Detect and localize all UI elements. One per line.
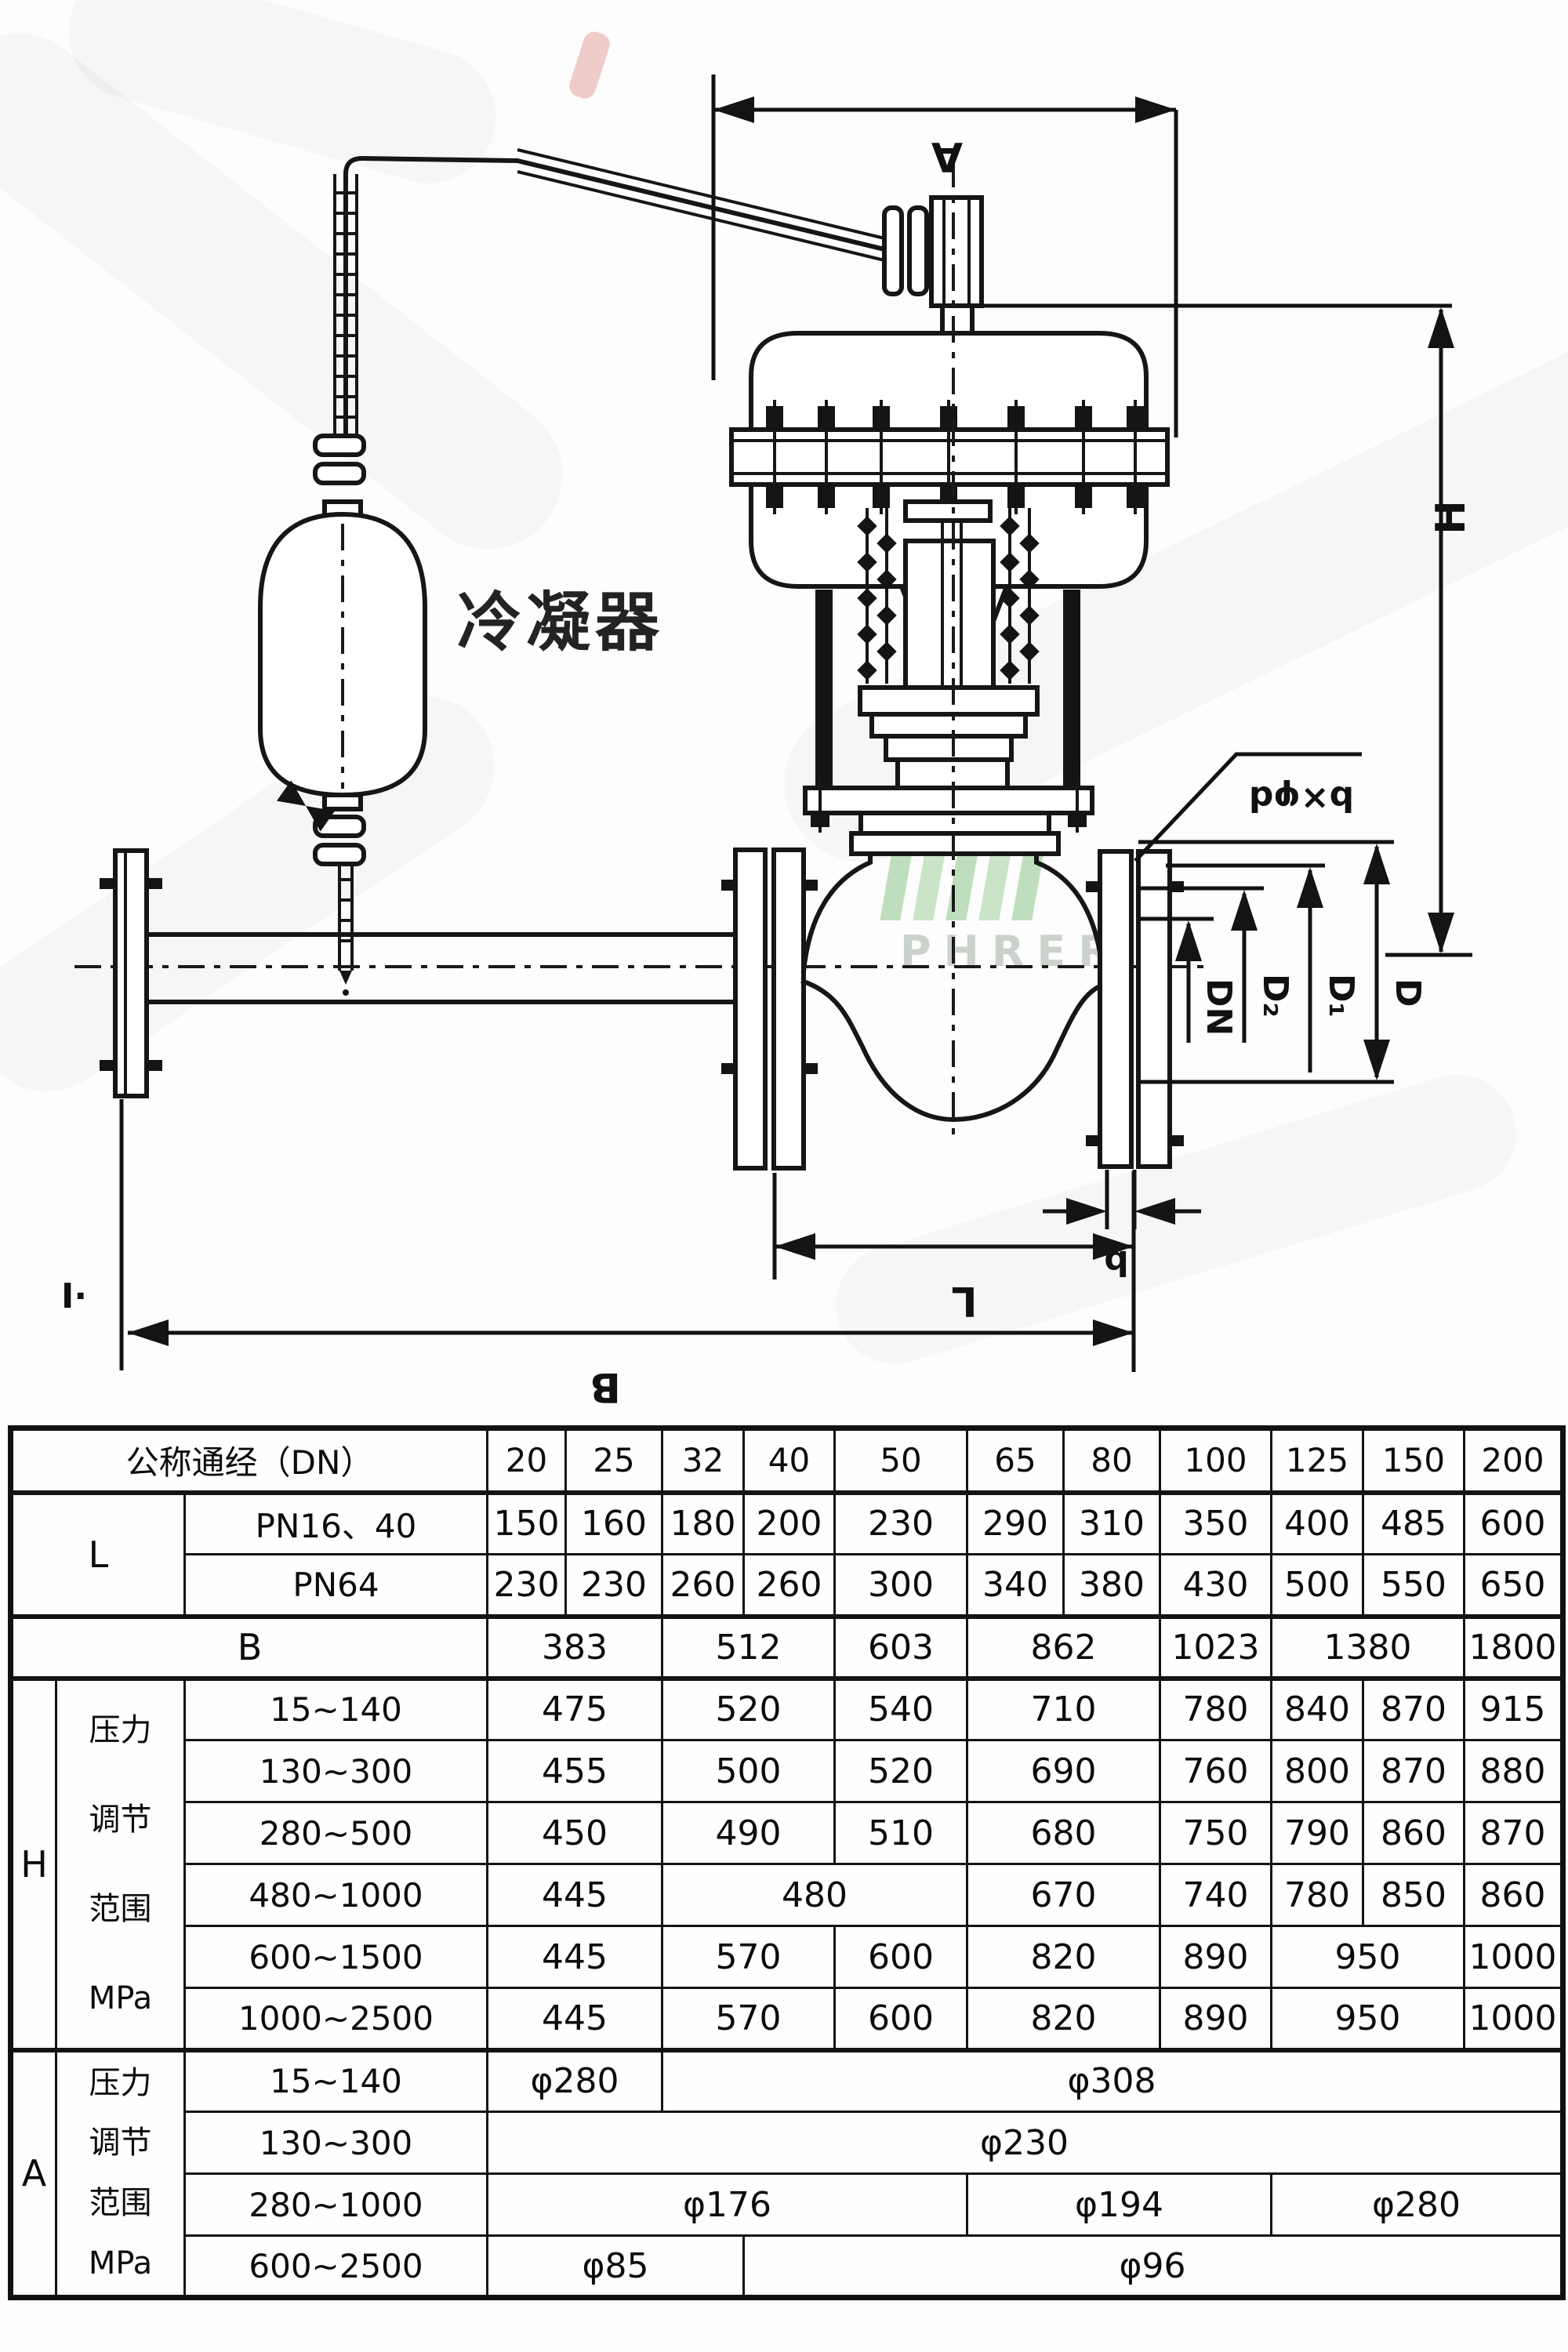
table-cell: 780 <box>1272 1864 1363 1926</box>
table-cell: 890 <box>1160 1926 1272 1988</box>
table-row-H-1000-2500: 1000~25004455706008208909501000 <box>11 1988 1563 2050</box>
table-cell: φ280 <box>488 2050 662 2112</box>
table-cell: 890 <box>1160 1988 1272 2050</box>
section-mark: I· <box>61 1276 87 1316</box>
table-cell: 860 <box>1363 1802 1465 1864</box>
page: PHRER 冷凝器 <box>0 0 1568 2352</box>
table-cell: 950 <box>1272 1926 1465 1988</box>
table-cell: 压力调节范围MPa <box>56 1679 185 2050</box>
table-cell: 570 <box>662 1988 835 2050</box>
table-cell: 475 <box>488 1679 662 1740</box>
dn-column-header: 20 <box>488 1428 566 1493</box>
table-cell: 15~140 <box>185 2050 488 2112</box>
table-cell: 603 <box>835 1617 967 1679</box>
table-cell: 1000 <box>1465 1926 1563 1988</box>
table-cell: 445 <box>488 1864 662 1926</box>
dim-label-D1: D₁ <box>1321 974 1361 1018</box>
left-pipe-flange <box>115 851 147 1096</box>
table-cell: 490 <box>662 1802 835 1864</box>
table-cell: 480~1000 <box>185 1864 488 1926</box>
table-cell: 820 <box>967 1926 1160 1988</box>
table-cell: 130~300 <box>185 1740 488 1802</box>
table-cell: 915 <box>1465 1679 1563 1740</box>
table-cell: 380 <box>1064 1555 1160 1617</box>
table-cell: 383 <box>488 1617 662 1679</box>
table-cell: 820 <box>967 1988 1160 2050</box>
dn-column-header: 80 <box>1064 1428 1160 1493</box>
table-cell: 230 <box>488 1555 566 1617</box>
table-cell: 510 <box>835 1802 967 1864</box>
table-cell: 750 <box>1160 1802 1272 1864</box>
dim-label-D: D <box>1388 978 1428 1007</box>
background-ghost-pipes <box>0 0 1568 1378</box>
table-cell: 862 <box>967 1617 1160 1679</box>
table-cell: 550 <box>1363 1555 1465 1617</box>
table-cell: φ96 <box>744 2236 1563 2298</box>
watermark-letters: PHRER <box>900 927 1123 976</box>
table-cell: 860 <box>1465 1864 1563 1926</box>
dim-label-D2: D₂ <box>1255 974 1295 1018</box>
table-cell: 260 <box>744 1555 835 1617</box>
table-cell: B <box>11 1617 488 1679</box>
table-cell: 870 <box>1363 1740 1465 1802</box>
dim-label-L: L <box>951 1277 977 1324</box>
header-label-cell: 公称通经（DN） <box>11 1428 488 1493</box>
table-cell: 600~1500 <box>185 1926 488 1988</box>
table-cell: 600 <box>835 1988 967 2050</box>
condenser-label: 冷凝器 <box>457 586 664 660</box>
table-cell: 280~1000 <box>185 2174 488 2236</box>
table-cell: 310 <box>1064 1493 1160 1555</box>
dimension-D-group: DN D₂ D₁ D <box>1138 842 1428 1082</box>
dimension-spec-table: 公称通经（DN）20253240506580100125150200 LPN16… <box>8 1425 1566 2300</box>
table-cell: 压力调节范围MPa <box>56 2050 185 2298</box>
dn-column-header: 50 <box>835 1428 967 1493</box>
table-cell: 512 <box>662 1617 835 1679</box>
table-row-A-15-140: A压力调节范围MPa15~140φ280φ308 <box>11 2050 1563 2112</box>
table-row-H-15-140: H压力调节范围MPa15~140475520540710780840870915 <box>11 1679 1563 1740</box>
actuator <box>731 198 1167 586</box>
yoke-plate <box>805 788 1092 813</box>
table-header: 公称通经（DN）20253240506580100125150200 <box>11 1428 1563 1493</box>
table-cell: 710 <box>967 1679 1160 1740</box>
table-cell: 130~300 <box>185 2112 488 2174</box>
table-cell: 430 <box>1160 1555 1272 1617</box>
dim-label-A: A <box>931 132 963 180</box>
valve-technical-drawing: PHRER 冷凝器 <box>0 0 1568 1425</box>
table-cell: H <box>11 1679 56 2050</box>
table-cell: 340 <box>967 1555 1064 1617</box>
table-cell: PN16、40 <box>185 1493 488 1555</box>
dim-label-bxd: b×φd <box>1249 779 1354 818</box>
table-row-A-130-300: 130~300φ230 <box>11 2112 1563 2174</box>
table-cell: φ230 <box>488 2112 1563 2174</box>
table-cell: 780 <box>1160 1679 1272 1740</box>
dn-column-header: 32 <box>662 1428 744 1493</box>
table-cell: 1380 <box>1272 1617 1465 1679</box>
table-cell: L <box>11 1493 185 1617</box>
table-cell: 300 <box>835 1555 967 1617</box>
table-cell: 870 <box>1465 1802 1563 1864</box>
spring-seat <box>906 541 993 688</box>
table-cell: 880 <box>1465 1740 1563 1802</box>
table-cell: 480 <box>662 1864 967 1926</box>
table-cell: 160 <box>566 1493 662 1555</box>
table-cell: φ308 <box>662 2050 1563 2112</box>
table-cell: 445 <box>488 1926 662 1988</box>
table-cell: 290 <box>967 1493 1064 1555</box>
table-cell: 445 <box>488 1988 662 2050</box>
table-cell: 200 <box>744 1493 835 1555</box>
dn-column-header: 100 <box>1160 1428 1272 1493</box>
table-cell: A <box>11 2050 56 2298</box>
table-cell: 15~140 <box>185 1679 488 1740</box>
table-cell: 680 <box>967 1802 1160 1864</box>
table-cell: 600~2500 <box>185 2236 488 2298</box>
table-cell: 850 <box>1363 1864 1465 1926</box>
table-cell: 690 <box>967 1740 1160 1802</box>
red-watermark-spot2 <box>567 29 613 101</box>
table-row-H-280-500: 280~500450490510680750790860870 <box>11 1802 1563 1864</box>
table-cell: 650 <box>1465 1555 1563 1617</box>
table-cell: 790 <box>1272 1802 1363 1864</box>
table-cell: 260 <box>662 1555 744 1617</box>
table-cell: 570 <box>662 1926 835 1988</box>
table-cell: φ176 <box>488 2174 967 2236</box>
table-cell: 450 <box>488 1802 662 1864</box>
table-row-H-130-300: 130~300455500520690760800870880 <box>11 1740 1563 1802</box>
table-row-B: B383512603862102313801800 <box>11 1617 1563 1679</box>
dim-label-B: B <box>590 1363 621 1410</box>
dim-label-DN: DN <box>1199 978 1239 1036</box>
table-row-L-PN16-40: LPN16、4015016018020023029031035040048560… <box>11 1493 1563 1555</box>
table-cell: 500 <box>662 1740 835 1802</box>
table-cell: 1000~2500 <box>185 1988 488 2050</box>
table-cell: 230 <box>835 1493 967 1555</box>
table-cell: 520 <box>662 1679 835 1740</box>
dim-label-H: H <box>1428 500 1475 535</box>
table-cell: 180 <box>662 1493 744 1555</box>
table-row-A-600-2500: 600~2500φ85φ96 <box>11 2236 1563 2298</box>
table-cell: 950 <box>1272 1988 1465 2050</box>
table-cell: φ85 <box>488 2236 744 2298</box>
table-cell: φ194 <box>967 2174 1272 2236</box>
table-cell: 455 <box>488 1740 662 1802</box>
dn-column-header: 25 <box>566 1428 662 1493</box>
dn-column-header: 125 <box>1272 1428 1363 1493</box>
table-cell: 500 <box>1272 1555 1363 1617</box>
table-cell: 350 <box>1160 1493 1272 1555</box>
dimension-bxd-callout: b×φd <box>1135 754 1362 861</box>
header-row: 公称通经（DN）20253240506580100125150200 <box>11 1428 1563 1493</box>
table-cell: 230 <box>566 1555 662 1617</box>
table-row-A-280-1000: 280~1000φ176φ194φ280 <box>11 2174 1563 2236</box>
table-cell: 540 <box>835 1679 967 1740</box>
table-cell: 740 <box>1160 1864 1272 1926</box>
dn-column-header: 200 <box>1465 1428 1563 1493</box>
table-cell: 1800 <box>1465 1617 1563 1679</box>
table-cell: 760 <box>1160 1740 1272 1802</box>
dn-column-header: 40 <box>744 1428 835 1493</box>
dn-column-header: 65 <box>967 1428 1064 1493</box>
table-cell: 520 <box>835 1740 967 1802</box>
table-cell: 800 <box>1272 1740 1363 1802</box>
dn-column-header: 150 <box>1363 1428 1465 1493</box>
table-row-L-PN64: PN64230230260260300340380430500550650 <box>11 1555 1563 1617</box>
table-cell: PN64 <box>185 1555 488 1617</box>
table-cell: 150 <box>488 1493 566 1555</box>
table-cell: 1023 <box>1160 1617 1272 1679</box>
signal-fitting-block <box>931 198 982 306</box>
table-cell: φ280 <box>1272 2174 1563 2236</box>
table-cell: 840 <box>1272 1679 1363 1740</box>
table-row-H-480-1000: 480~1000445480670740780850860 <box>11 1864 1563 1926</box>
table-cell: 600 <box>835 1926 967 1988</box>
table-body: LPN16、4015016018020023029031035040048560… <box>11 1493 1563 2298</box>
table-cell: 670 <box>967 1864 1160 1926</box>
table-cell: 1000 <box>1465 1988 1563 2050</box>
table-cell: 485 <box>1363 1493 1465 1555</box>
table-cell: 280~500 <box>185 1802 488 1864</box>
table-cell: 600 <box>1465 1493 1563 1555</box>
table-cell: 400 <box>1272 1493 1363 1555</box>
table-row-H-600-1500: 600~15004455706008208909501000 <box>11 1926 1563 1988</box>
table-cell: 870 <box>1363 1679 1465 1740</box>
